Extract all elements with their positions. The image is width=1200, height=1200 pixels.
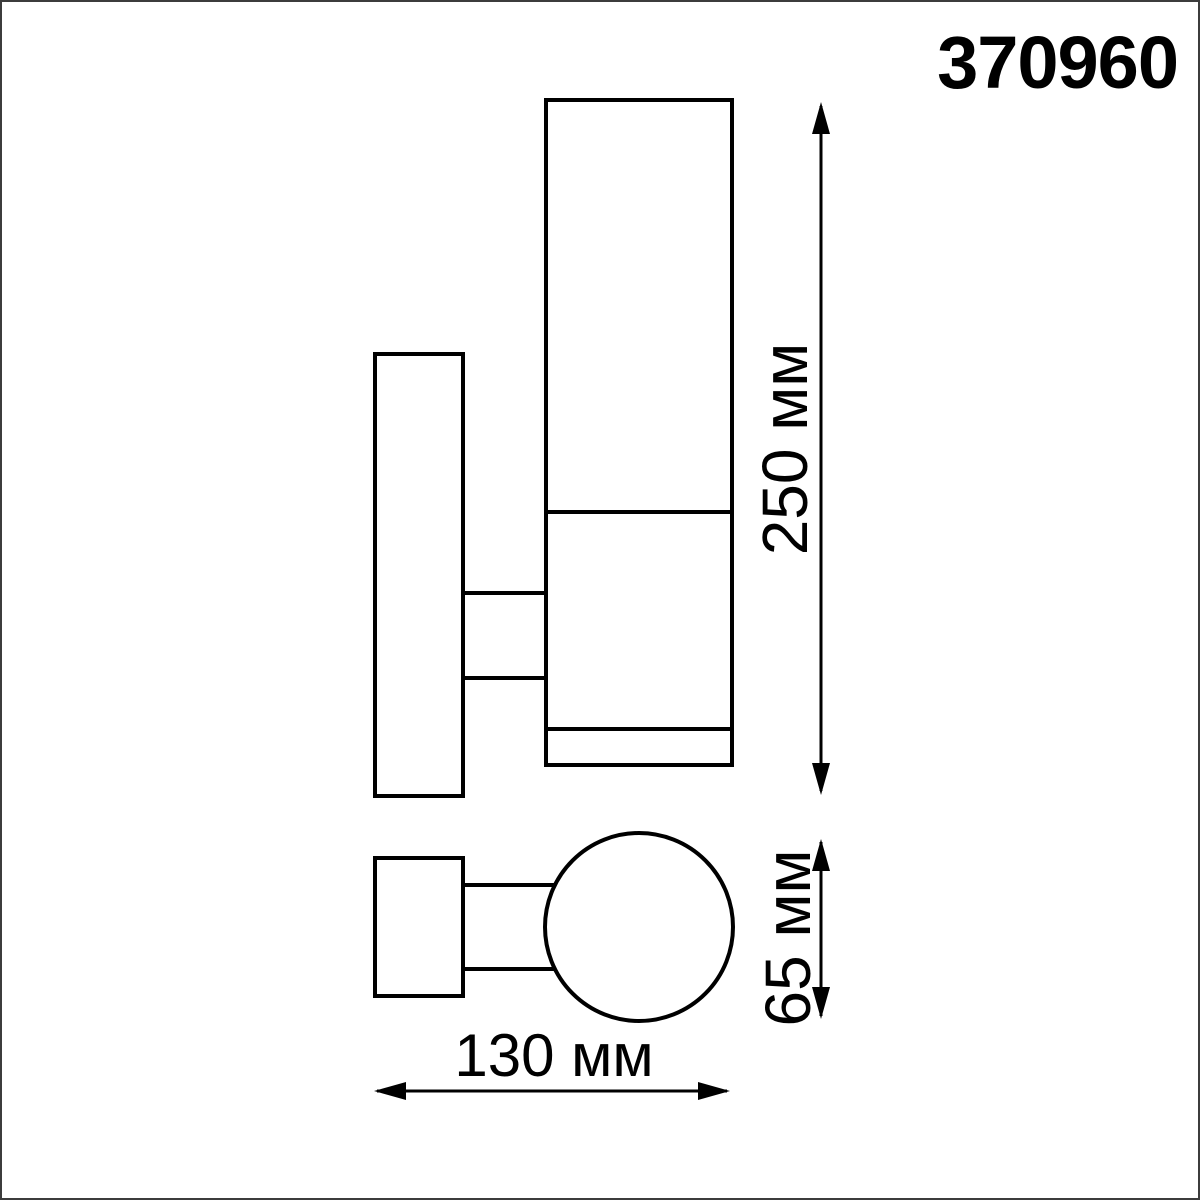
arrow-up-icon <box>812 102 830 134</box>
arrow-right-icon <box>698 1082 730 1100</box>
arrow-down-icon <box>812 763 830 795</box>
side-view <box>375 100 732 796</box>
side-view-wall-plate <box>375 354 463 796</box>
diameter-dimension-label: 65 мм <box>756 850 820 1027</box>
technical-drawing <box>2 2 1198 1198</box>
bottom-view-lamp-body-circle <box>545 833 733 1021</box>
arrow-left-icon <box>374 1082 406 1100</box>
bottom-view <box>375 833 733 1021</box>
diagram-canvas: 370960 250 мм 65 мм 130 мм <box>0 0 1200 1200</box>
side-view-lamp-body <box>546 100 732 765</box>
width-dimension-label: 130 мм <box>454 1026 653 1086</box>
bottom-view-wall-plate <box>375 858 463 996</box>
height-dimension-label: 250 мм <box>753 343 817 556</box>
product-code: 370960 <box>937 26 1178 100</box>
